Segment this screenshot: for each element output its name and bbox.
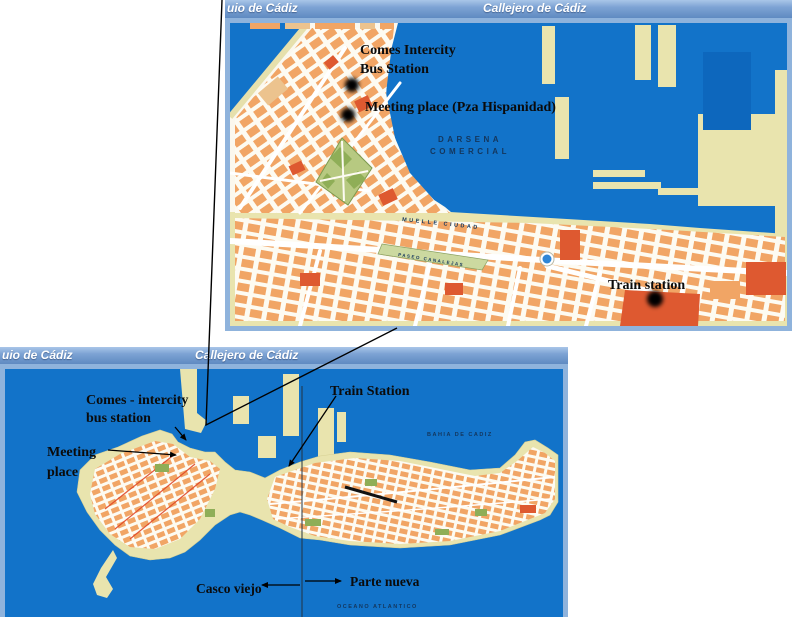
darsena-label-line1: DARSENA — [438, 135, 502, 144]
overview-map-window: uio de Cádiz Callejero de Cádiz — [0, 347, 568, 617]
inset-label-meeting-place: Meeting place (Pza Hispanidad) — [365, 100, 556, 115]
overview-map-titlebar: uio de Cádiz Callejero de Cádiz — [0, 347, 568, 365]
inset-map-canvas[interactable]: DARSENA COMERCIAL MUELLE CIUDAD PASEO CA… — [225, 18, 792, 331]
inset-label-bus-line2: Bus Station — [360, 62, 429, 77]
overview-title-left: uio de Cádiz — [2, 348, 73, 362]
train-station-marker — [647, 291, 663, 307]
overview-map-svg: BAHIA DE CADIZ OCEANO ATLANTICO Comes - … — [5, 369, 563, 617]
inset-map-svg: DARSENA COMERCIAL MUELLE CIUDAD PASEO CA… — [230, 23, 787, 326]
overview-label-train-station: Train Station — [330, 384, 410, 399]
overview-label-meeting-line1: Meeting — [47, 445, 96, 460]
bus-station-marker — [345, 78, 359, 92]
inset-map-titlebar: uio de Cádiz Callejero de Cádiz — [225, 0, 792, 19]
bahia-de-cadiz-label: BAHIA DE CADIZ — [427, 432, 493, 438]
inset-label-bus-line1: Comes Intercity — [360, 43, 456, 58]
overview-label-casco-viejo: Casco viejo — [196, 581, 262, 596]
darsena-label-line2: COMERCIAL — [430, 147, 510, 156]
overview-label-parte-nueva: Parte nueva — [350, 574, 420, 589]
overview-label-bus-line2: bus station — [86, 411, 151, 426]
inset-label-train-station: Train station — [608, 278, 685, 293]
overview-map-canvas[interactable]: BAHIA DE CADIZ OCEANO ATLANTICO Comes - … — [0, 364, 568, 617]
meeting-place-marker — [341, 108, 355, 122]
inset-title-left: uio de Cádiz — [227, 1, 298, 15]
roundabout — [540, 252, 554, 266]
overview-label-bus-line1: Comes - intercity — [86, 393, 188, 408]
inset-title-right: Callejero de Cádiz — [483, 1, 586, 15]
inset-map-window: uio de Cádiz Callejero de Cádiz — [225, 0, 792, 331]
overview-title-right: Callejero de Cádiz — [195, 348, 298, 362]
overview-label-meeting-line2: place — [47, 465, 78, 480]
oceano-atlantico-label: OCEANO ATLANTICO — [337, 604, 418, 610]
